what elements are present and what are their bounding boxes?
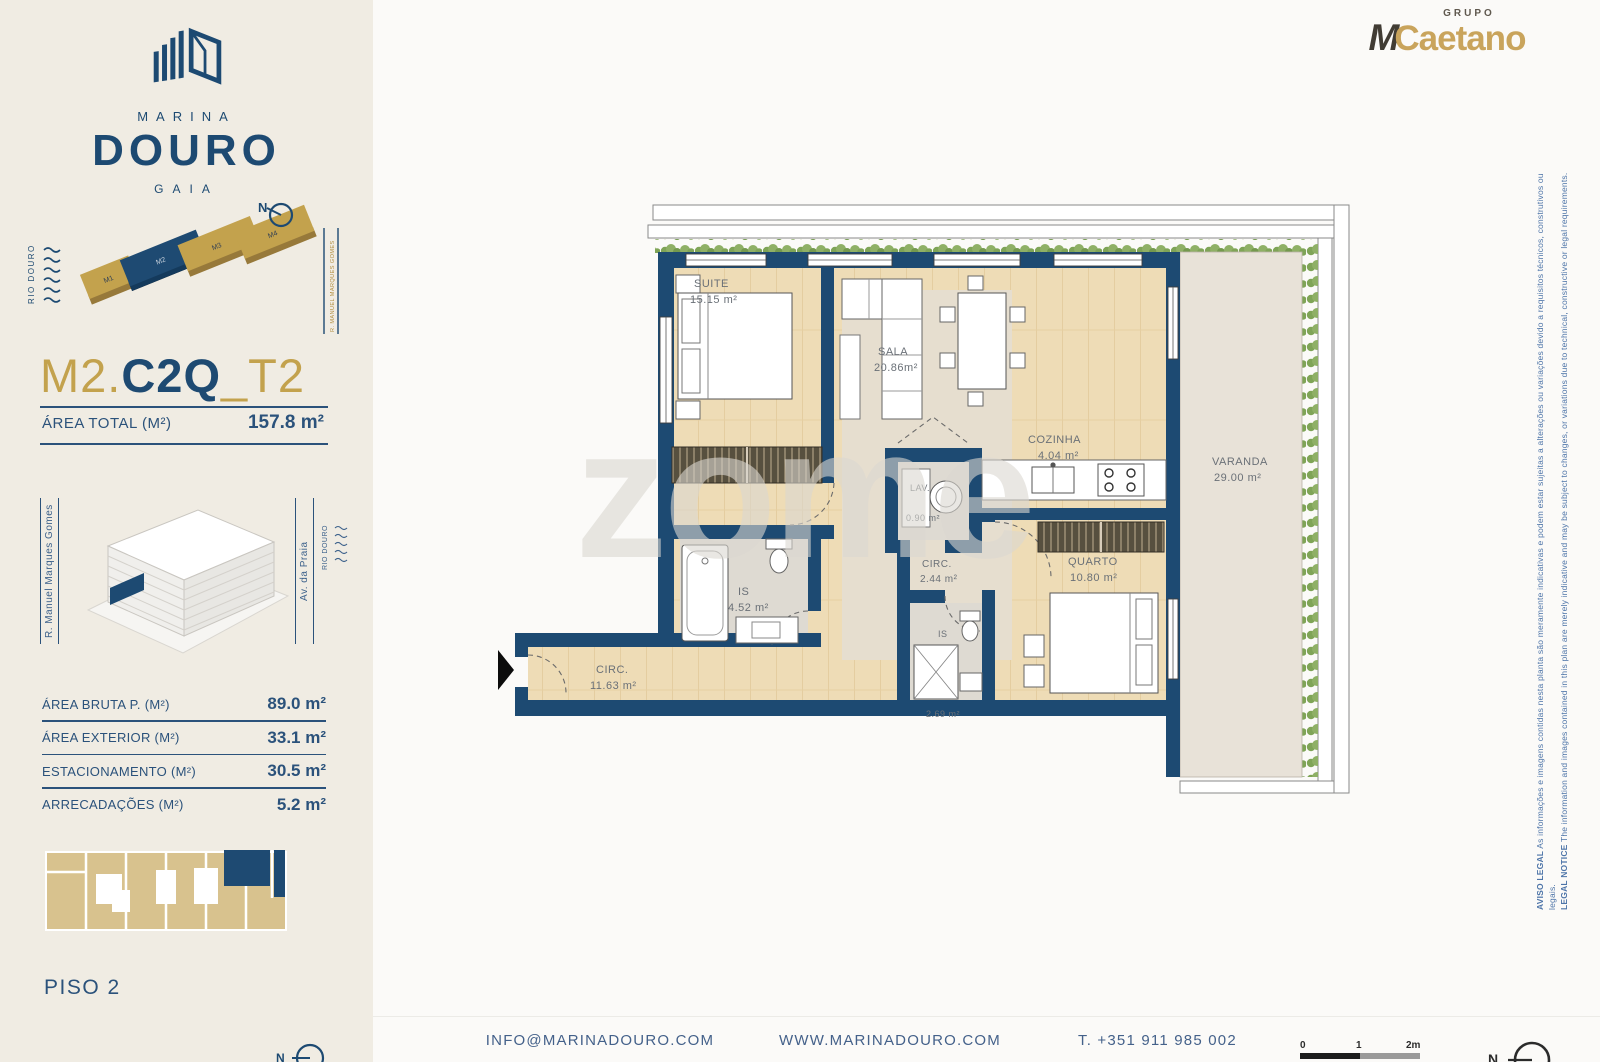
room-label-is1: IS (738, 586, 749, 598)
area-row-value: 5.2 m² (277, 795, 326, 815)
footer-divider (373, 1016, 1600, 1017)
scale-segment-gray (1360, 1053, 1420, 1059)
area-row-label: ESTACIONAMENTO (M²) (42, 764, 196, 779)
footer-phone[interactable]: T. +351 911 985 002 (1078, 1032, 1298, 1049)
table-row: ARRECADAÇÕES (M²) 5.2 m² (42, 789, 326, 821)
area-row-label: ARRECADAÇÕES (M²) (42, 797, 184, 812)
scale-tick-1: 1 (1356, 1040, 1362, 1051)
room-area-suite: 15.15 m² (690, 294, 737, 306)
kitchen-counter (982, 460, 1166, 500)
legal-en-text: The information and images contained in … (1559, 173, 1569, 845)
partner-logo: GRUPO M Caetano (1352, 8, 1542, 59)
scale-tick-0: 0 (1300, 1040, 1306, 1051)
legal-notice: AVISO LEGAL As informações e imagens con… (1534, 150, 1560, 910)
room-area-varanda: 29.00 m² (1214, 472, 1261, 484)
area-total-label: ÁREA TOTAL (M²) (42, 415, 171, 432)
room-area-circ2: 11.63 m² (590, 680, 637, 692)
table-row: ÁREA EXTERIOR (M²) 33.1 m² (42, 722, 326, 754)
legal-en-label: LEGAL NOTICE (1559, 844, 1569, 910)
divider (40, 406, 328, 408)
unit-code-main: C2Q (121, 349, 221, 402)
room-area-sala: 20.86m² (874, 362, 918, 374)
sidebar: MARINA DOURO GAIA RIO DOURO M1 M2 (0, 0, 373, 1062)
room-label-circ2: CIRC. (596, 664, 628, 676)
river-side-waves-icon (333, 520, 353, 570)
floor-label: PISO 2 (44, 976, 121, 1000)
sidebar-compass-icon: N (268, 1030, 348, 1062)
footer-compass-n: N (1488, 1051, 1498, 1062)
washing-machine (930, 481, 962, 513)
room-area-cozinha: 4.04 m² (1038, 450, 1079, 462)
page: MARINA DOURO GAIA RIO DOURO M1 M2 (0, 0, 1600, 1062)
river-side-label: RIO DOURO (322, 520, 353, 575)
room-label-suite: SUITE (694, 278, 729, 290)
unit-code-prefix: M2. (40, 349, 121, 402)
site-street-label: R. MANUEL MARQUES GOMES (330, 240, 336, 332)
unit-code: M2.C2Q_T2 (40, 348, 340, 403)
room-label-sala: SALA (878, 346, 908, 358)
entry-arrow-icon (498, 650, 514, 690)
area-row-value: 30.5 m² (267, 761, 326, 781)
key-plan (38, 842, 318, 977)
room-label-lav: LAV. (910, 483, 930, 493)
area-total-row: ÁREA TOTAL (M²) 157.8 m² (42, 412, 324, 434)
balcony-floor (1180, 252, 1302, 777)
stove (1098, 464, 1144, 496)
river-waves-icon (44, 248, 60, 302)
footer-website[interactable]: WWW.MARINADOURO.COM (760, 1032, 1020, 1049)
scale-bar: 0 1 2m (1300, 1040, 1430, 1060)
room-label-is2: IS (938, 629, 948, 639)
site-map: RIO DOURO M1 M2 M3 M4 (18, 192, 358, 344)
planter-right (1302, 253, 1318, 777)
brand-douro: DOURO (0, 126, 373, 176)
area-row-value: 33.1 m² (267, 728, 326, 748)
legal-pt-text: As informações e imagens contidas nesta … (1535, 173, 1557, 910)
table-row: ESTACIONAMENTO (M²) 30.5 m² (42, 755, 326, 787)
toilet (770, 549, 788, 573)
brand-marina: MARINA (0, 109, 373, 124)
street-left-label: R. Manuel Marques Gomes (40, 498, 59, 644)
legal-pt-label: AVISO LEGAL (1535, 851, 1545, 910)
building-3d-view (78, 468, 298, 668)
room-area-lav: 0.90 m² (906, 513, 940, 523)
footer-compass-icon: N (1482, 1022, 1572, 1062)
scale-tick-2: 2m (1406, 1040, 1420, 1051)
scale-segment-black (1300, 1053, 1360, 1059)
site-block-m4: M4 (234, 205, 316, 265)
sidebar-compass-n: N (276, 1051, 285, 1062)
street-right-label: Av. da Praia (295, 498, 314, 644)
room-label-cozinha: COZINHA (1028, 434, 1081, 446)
room-area-is2: 2.69 m² (926, 709, 960, 719)
key-plan-highlight-unit (224, 850, 270, 886)
site-compass-n: N (258, 200, 267, 215)
room-area-is1: 4.52 m² (728, 602, 769, 614)
room-label-quarto: QUARTO (1068, 556, 1118, 568)
area-row-label: ÁREA EXTERIOR (M²) (42, 730, 180, 745)
brand-logo: MARINA DOURO GAIA (0, 20, 373, 196)
floor-plan: SUITE 15.15 m² SALA 20.86m² COZINHA 4.04… (490, 195, 1360, 800)
room-area-quarto: 10.80 m² (1070, 572, 1117, 584)
area-row-value: 89.0 m² (267, 694, 326, 714)
area-total-value: 157.8 m² (248, 412, 324, 434)
unit-code-suffix: _T2 (221, 349, 305, 402)
divider (40, 443, 328, 445)
room-label-varanda: VARANDA (1212, 456, 1268, 468)
vanity (736, 617, 798, 643)
partner-caetano: Caetano (1394, 19, 1525, 59)
river-side-text: RIO DOURO (322, 525, 329, 570)
building-logo-icon (144, 20, 230, 98)
table-row: ÁREA BRUTA P. (M²) 89.0 m² (42, 688, 326, 720)
dining-table (958, 293, 1006, 389)
area-table: ÁREA BRUTA P. (M²) 89.0 m² ÁREA EXTERIOR… (42, 688, 326, 821)
site-river-label: RIO DOURO (27, 244, 36, 304)
planter-top (655, 239, 1318, 253)
footer-email[interactable]: INFO@MARINADOURO.COM (470, 1032, 730, 1049)
toilet (962, 621, 978, 641)
area-row-label: ÁREA BRUTA P. (M²) (42, 697, 170, 712)
room-label-circ1: CIRC. (922, 559, 952, 570)
bathtub (682, 545, 728, 641)
room-area-circ1: 2.44 m² (920, 574, 958, 585)
